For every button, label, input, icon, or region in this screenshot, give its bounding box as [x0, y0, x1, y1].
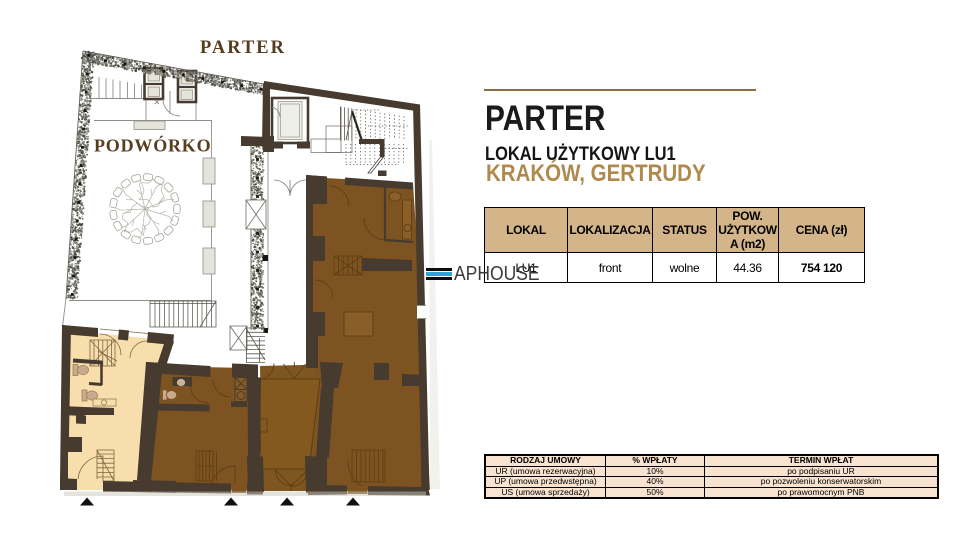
svg-text:PODWÓRKO: PODWÓRKO: [94, 135, 211, 156]
svg-text:PARTER: PARTER: [200, 38, 286, 58]
